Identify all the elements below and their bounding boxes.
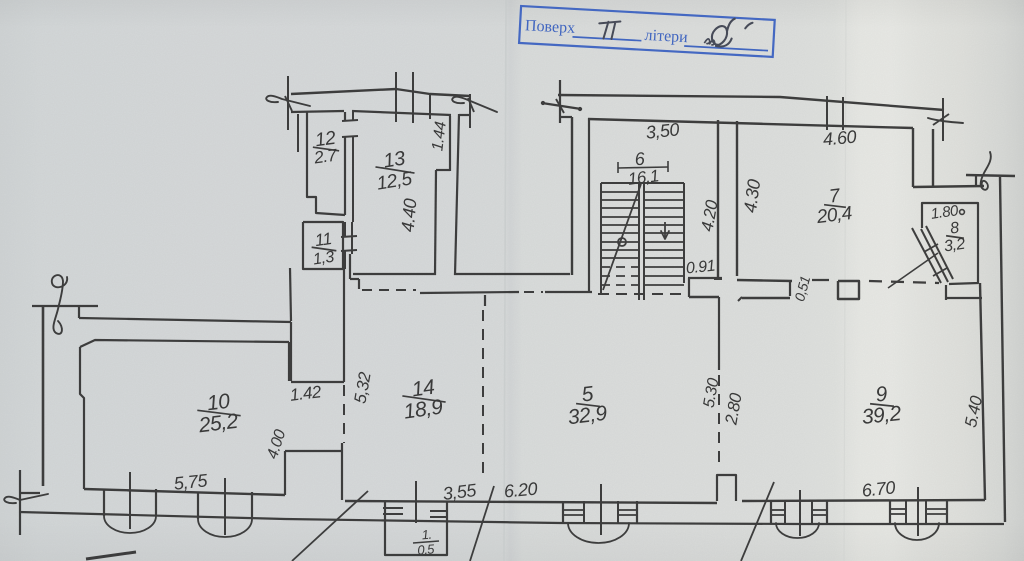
- svg-text:6.70: 6.70: [861, 477, 896, 500]
- svg-text:6.20: 6.20: [503, 479, 538, 502]
- svg-text:11: 11: [314, 229, 333, 250]
- svg-text:2.7: 2.7: [312, 145, 339, 167]
- svg-text:1.42: 1.42: [289, 382, 323, 405]
- svg-text:1.: 1.: [421, 527, 432, 543]
- svg-text:5,75: 5,75: [173, 470, 209, 493]
- svg-text:Поверх: Поверх: [525, 17, 576, 37]
- svg-text:0,5: 0,5: [417, 541, 436, 557]
- svg-text:1,3: 1,3: [312, 249, 336, 269]
- svg-text:3,2: 3,2: [943, 236, 967, 256]
- svg-text:0.91: 0.91: [685, 258, 716, 278]
- svg-text:3,50: 3,50: [645, 119, 680, 142]
- svg-text:1.44: 1.44: [429, 120, 449, 152]
- svg-text:літери: літери: [644, 27, 688, 46]
- svg-text:4.40: 4.40: [398, 198, 421, 233]
- svg-text:4.60: 4.60: [822, 127, 857, 150]
- svg-text:25,2: 25,2: [197, 410, 240, 438]
- svg-text:20,4: 20,4: [815, 203, 853, 228]
- svg-text:16,1: 16,1: [627, 166, 660, 189]
- svg-text:39,2: 39,2: [861, 402, 903, 429]
- svg-text:32,9: 32,9: [567, 402, 609, 430]
- svg-text:3,55: 3,55: [442, 480, 479, 504]
